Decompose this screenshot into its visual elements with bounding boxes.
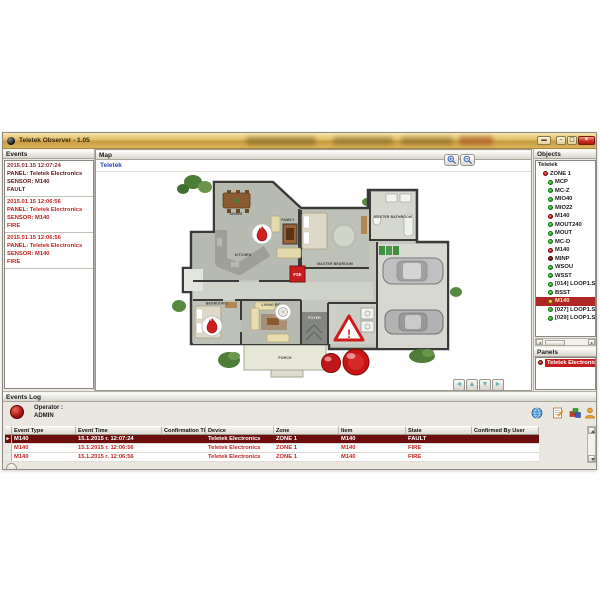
status-led-icon: [548, 316, 553, 321]
operator-status-icon: [10, 405, 24, 419]
svg-text:MASTER BEDROOM: MASTER BEDROOM: [317, 262, 353, 266]
tree-item[interactable]: MC-D: [536, 238, 595, 247]
map-tab-teletek[interactable]: Teletek: [100, 162, 122, 169]
column-header[interactable]: Zone: [274, 426, 339, 435]
edit-note-icon[interactable]: [552, 406, 564, 418]
events-panel-title: Events: [6, 151, 27, 158]
close-button[interactable]: ×: [578, 136, 595, 145]
operator-label: Operator :: [34, 405, 63, 411]
column-header[interactable]: State: [406, 426, 472, 435]
tree-item[interactable]: M140: [536, 297, 595, 306]
row-marker: [5, 444, 12, 452]
event-entry[interactable]: 2015.01.15 12:06:56 PANEL: Teletek Elect…: [5, 233, 93, 269]
panel-item[interactable]: Teletek Electronics: [536, 358, 595, 367]
event-entry[interactable]: 2015.01.15 12:07:24 PANEL: Teletek Elect…: [5, 161, 93, 197]
events-log-header: Events Log: [3, 392, 596, 402]
map-panel-title: Map: [99, 152, 112, 159]
scroll-left-icon[interactable]: [536, 339, 543, 345]
titlebar-artifact: [459, 136, 493, 145]
objects-panel: Objects Teletek ZONE 1 MCP MC-Z MIO40 MI…: [533, 149, 596, 391]
status-led-icon: [543, 171, 548, 176]
scroll-up-icon[interactable]: [588, 427, 595, 434]
events-log-title: Events Log: [6, 394, 41, 401]
status-led-icon: [548, 265, 553, 270]
tree-item[interactable]: ZONE 1: [536, 170, 595, 179]
status-led-icon: [548, 222, 553, 227]
events-panel: Events 2015.01.15 12:07:24 PANEL: Telete…: [3, 149, 95, 391]
status-led-icon: [548, 180, 553, 185]
tree-item[interactable]: M140: [536, 212, 595, 221]
svg-text:KITCHEN: KITCHEN: [235, 253, 252, 257]
horizontal-scrollbar[interactable]: [535, 338, 596, 346]
report-icon[interactable]: [569, 406, 581, 418]
titlebar-artifact: [401, 137, 453, 145]
column-header[interactable]: Device: [206, 426, 274, 435]
status-led-icon: [548, 307, 553, 312]
svg-text:MASTER BATHROOM: MASTER BATHROOM: [374, 215, 412, 219]
record-navigator-button[interactable]: [6, 463, 17, 470]
operator-name: ADMIN: [34, 413, 54, 419]
zoom-out-icon: [463, 155, 473, 165]
column-header[interactable]: Event Type: [12, 426, 76, 435]
events-panel-header: Events: [3, 149, 94, 159]
tree-item[interactable]: MOUT240: [536, 221, 595, 230]
status-led-icon: [548, 248, 553, 253]
row-selector-header: [5, 426, 12, 435]
panels-panel-header: Panels: [534, 347, 596, 357]
maximize-button[interactable]: ▢: [567, 136, 577, 145]
zoom-out-button[interactable]: [460, 154, 475, 166]
status-led-icon: [538, 360, 543, 365]
beacon-icon[interactable]: [343, 349, 369, 375]
svg-text:!: !: [347, 327, 351, 341]
titlebar[interactable]: Teletek Observer - 1.05 ▬ – ▢ ×: [3, 133, 596, 149]
events-log-section: Events Log Operator : ADMIN Event Type E…: [3, 391, 596, 470]
scroll-down-icon[interactable]: [588, 455, 595, 462]
fire-alarm-icon[interactable]: [252, 224, 272, 244]
row-marker: [5, 453, 12, 461]
table-row[interactable]: M140 15.1.2015 г. 12:06:56 Teletek Elect…: [5, 453, 539, 462]
event-entry[interactable]: 2015.01.15 12:06:56 PANEL: Teletek Elect…: [5, 197, 93, 233]
porch-step: [271, 370, 303, 377]
svg-text:FSE: FSE: [293, 272, 301, 277]
tree-item[interactable]: MOUT: [536, 229, 595, 238]
pan-right-button[interactable]: ►: [492, 379, 504, 391]
table-row[interactable]: M140 15.1.2015 г. 12:06:56 Teletek Elect…: [5, 444, 539, 453]
beacon-icon[interactable]: [322, 354, 341, 373]
tree-item[interactable]: [014] LOOP1.SENSOR: [536, 280, 595, 289]
tree-item[interactable]: BSST: [536, 289, 595, 298]
floor-plan-area: DINING KITCHEN FAMILY MASTER BEDROOM MAS…: [171, 172, 471, 384]
floor-plan: DINING KITCHEN FAMILY MASTER BEDROOM MAS…: [171, 172, 471, 384]
car: [383, 258, 443, 284]
svg-text:PORCH: PORCH: [278, 356, 292, 360]
titlebar-artifact: [246, 137, 316, 145]
scroll-right-icon[interactable]: [588, 339, 595, 345]
status-led-icon: [548, 205, 553, 210]
minimize-button[interactable]: –: [556, 136, 566, 145]
column-header[interactable]: Confirmation Time: [162, 426, 206, 435]
app-window: Teletek Observer - 1.05 ▬ – ▢ × Events 2…: [2, 132, 597, 470]
status-led-icon: [548, 197, 553, 202]
status-led-icon: [548, 282, 553, 287]
scrollbar-thumb[interactable]: [545, 340, 565, 346]
titlebar-artifact: [333, 137, 393, 145]
tree-item[interactable]: M140: [536, 246, 595, 255]
tree-item[interactable]: [027] LOOP1.SENSOR: [536, 306, 595, 315]
tree-item[interactable]: WSST: [536, 272, 595, 281]
svg-text:FOYER: FOYER: [308, 316, 321, 320]
desktop: Teletek Observer - 1.05 ▬ – ▢ × Events 2…: [0, 0, 600, 600]
window-menu-button[interactable]: ▬: [537, 136, 551, 145]
tree-item[interactable]: [029] LOOP1.SENSOR: [536, 314, 595, 323]
svg-text:FAMILY: FAMILY: [281, 218, 295, 222]
events-log-table: Event Type Event Time Confirmation Time …: [5, 426, 539, 462]
panels-panel-title: Panels: [537, 349, 558, 356]
smoke-detector-icon[interactable]: [275, 304, 291, 320]
tree-item[interactable]: MIO40: [536, 195, 595, 204]
fse-box-icon[interactable]: FSE: [290, 266, 305, 282]
status-led-icon: [548, 256, 553, 261]
tree-item[interactable]: WSOU: [536, 263, 595, 272]
column-header[interactable]: Confirmed By User: [472, 426, 539, 435]
svg-text:DINING: DINING: [229, 212, 242, 216]
pan-down-button[interactable]: ▼: [479, 379, 491, 391]
objects-panel-header: Objects: [534, 149, 596, 159]
window-title: Teletek Observer - 1.05: [19, 137, 90, 144]
row-marker: ►: [5, 435, 12, 443]
objects-panel-title: Objects: [537, 151, 561, 158]
events-list: 2015.01.15 12:07:24 PANEL: Teletek Elect…: [4, 160, 94, 389]
status-led-icon: [548, 273, 553, 278]
globe-icon[interactable]: [531, 406, 543, 418]
table-header-row: Event Type Event Time Confirmation Time …: [5, 426, 539, 435]
vertical-scrollbar[interactable]: [587, 426, 596, 463]
column-header[interactable]: Event Time: [76, 426, 162, 435]
panels-list: Teletek Electronics: [535, 357, 596, 390]
map-panel: Map Teletek: [95, 149, 532, 391]
zoom-in-icon: [447, 155, 457, 165]
status-led-icon: [548, 214, 553, 219]
pan-up-button[interactable]: ▲: [466, 379, 478, 391]
tree-item[interactable]: MC-Z: [536, 187, 595, 196]
tree-root[interactable]: Teletek: [536, 161, 595, 170]
zoom-in-button[interactable]: [444, 154, 459, 166]
status-led-icon: [548, 239, 553, 244]
status-led-icon: [548, 188, 553, 193]
status-led-icon: [548, 290, 553, 295]
fire-alarm-icon[interactable]: [202, 316, 222, 336]
tree-item[interactable]: MCP: [536, 178, 595, 187]
column-header[interactable]: Item: [339, 426, 406, 435]
table-row[interactable]: ► M140 15.1.2015 г. 12:07:24 Teletek Ele…: [5, 435, 539, 444]
pan-left-button[interactable]: ◄: [453, 379, 465, 391]
status-led-icon: [548, 231, 553, 236]
app-icon: [7, 137, 15, 145]
car: [385, 310, 443, 334]
tree-item[interactable]: MINP: [536, 255, 595, 264]
tree-item[interactable]: MIO22: [536, 204, 595, 213]
device-tree: Teletek ZONE 1 MCP MC-Z MIO40 MIO22 M140…: [535, 160, 596, 337]
operator-icon[interactable]: [584, 406, 596, 418]
status-led-icon: [548, 299, 553, 304]
svg-text:BEDROOM 2: BEDROOM 2: [206, 302, 228, 306]
